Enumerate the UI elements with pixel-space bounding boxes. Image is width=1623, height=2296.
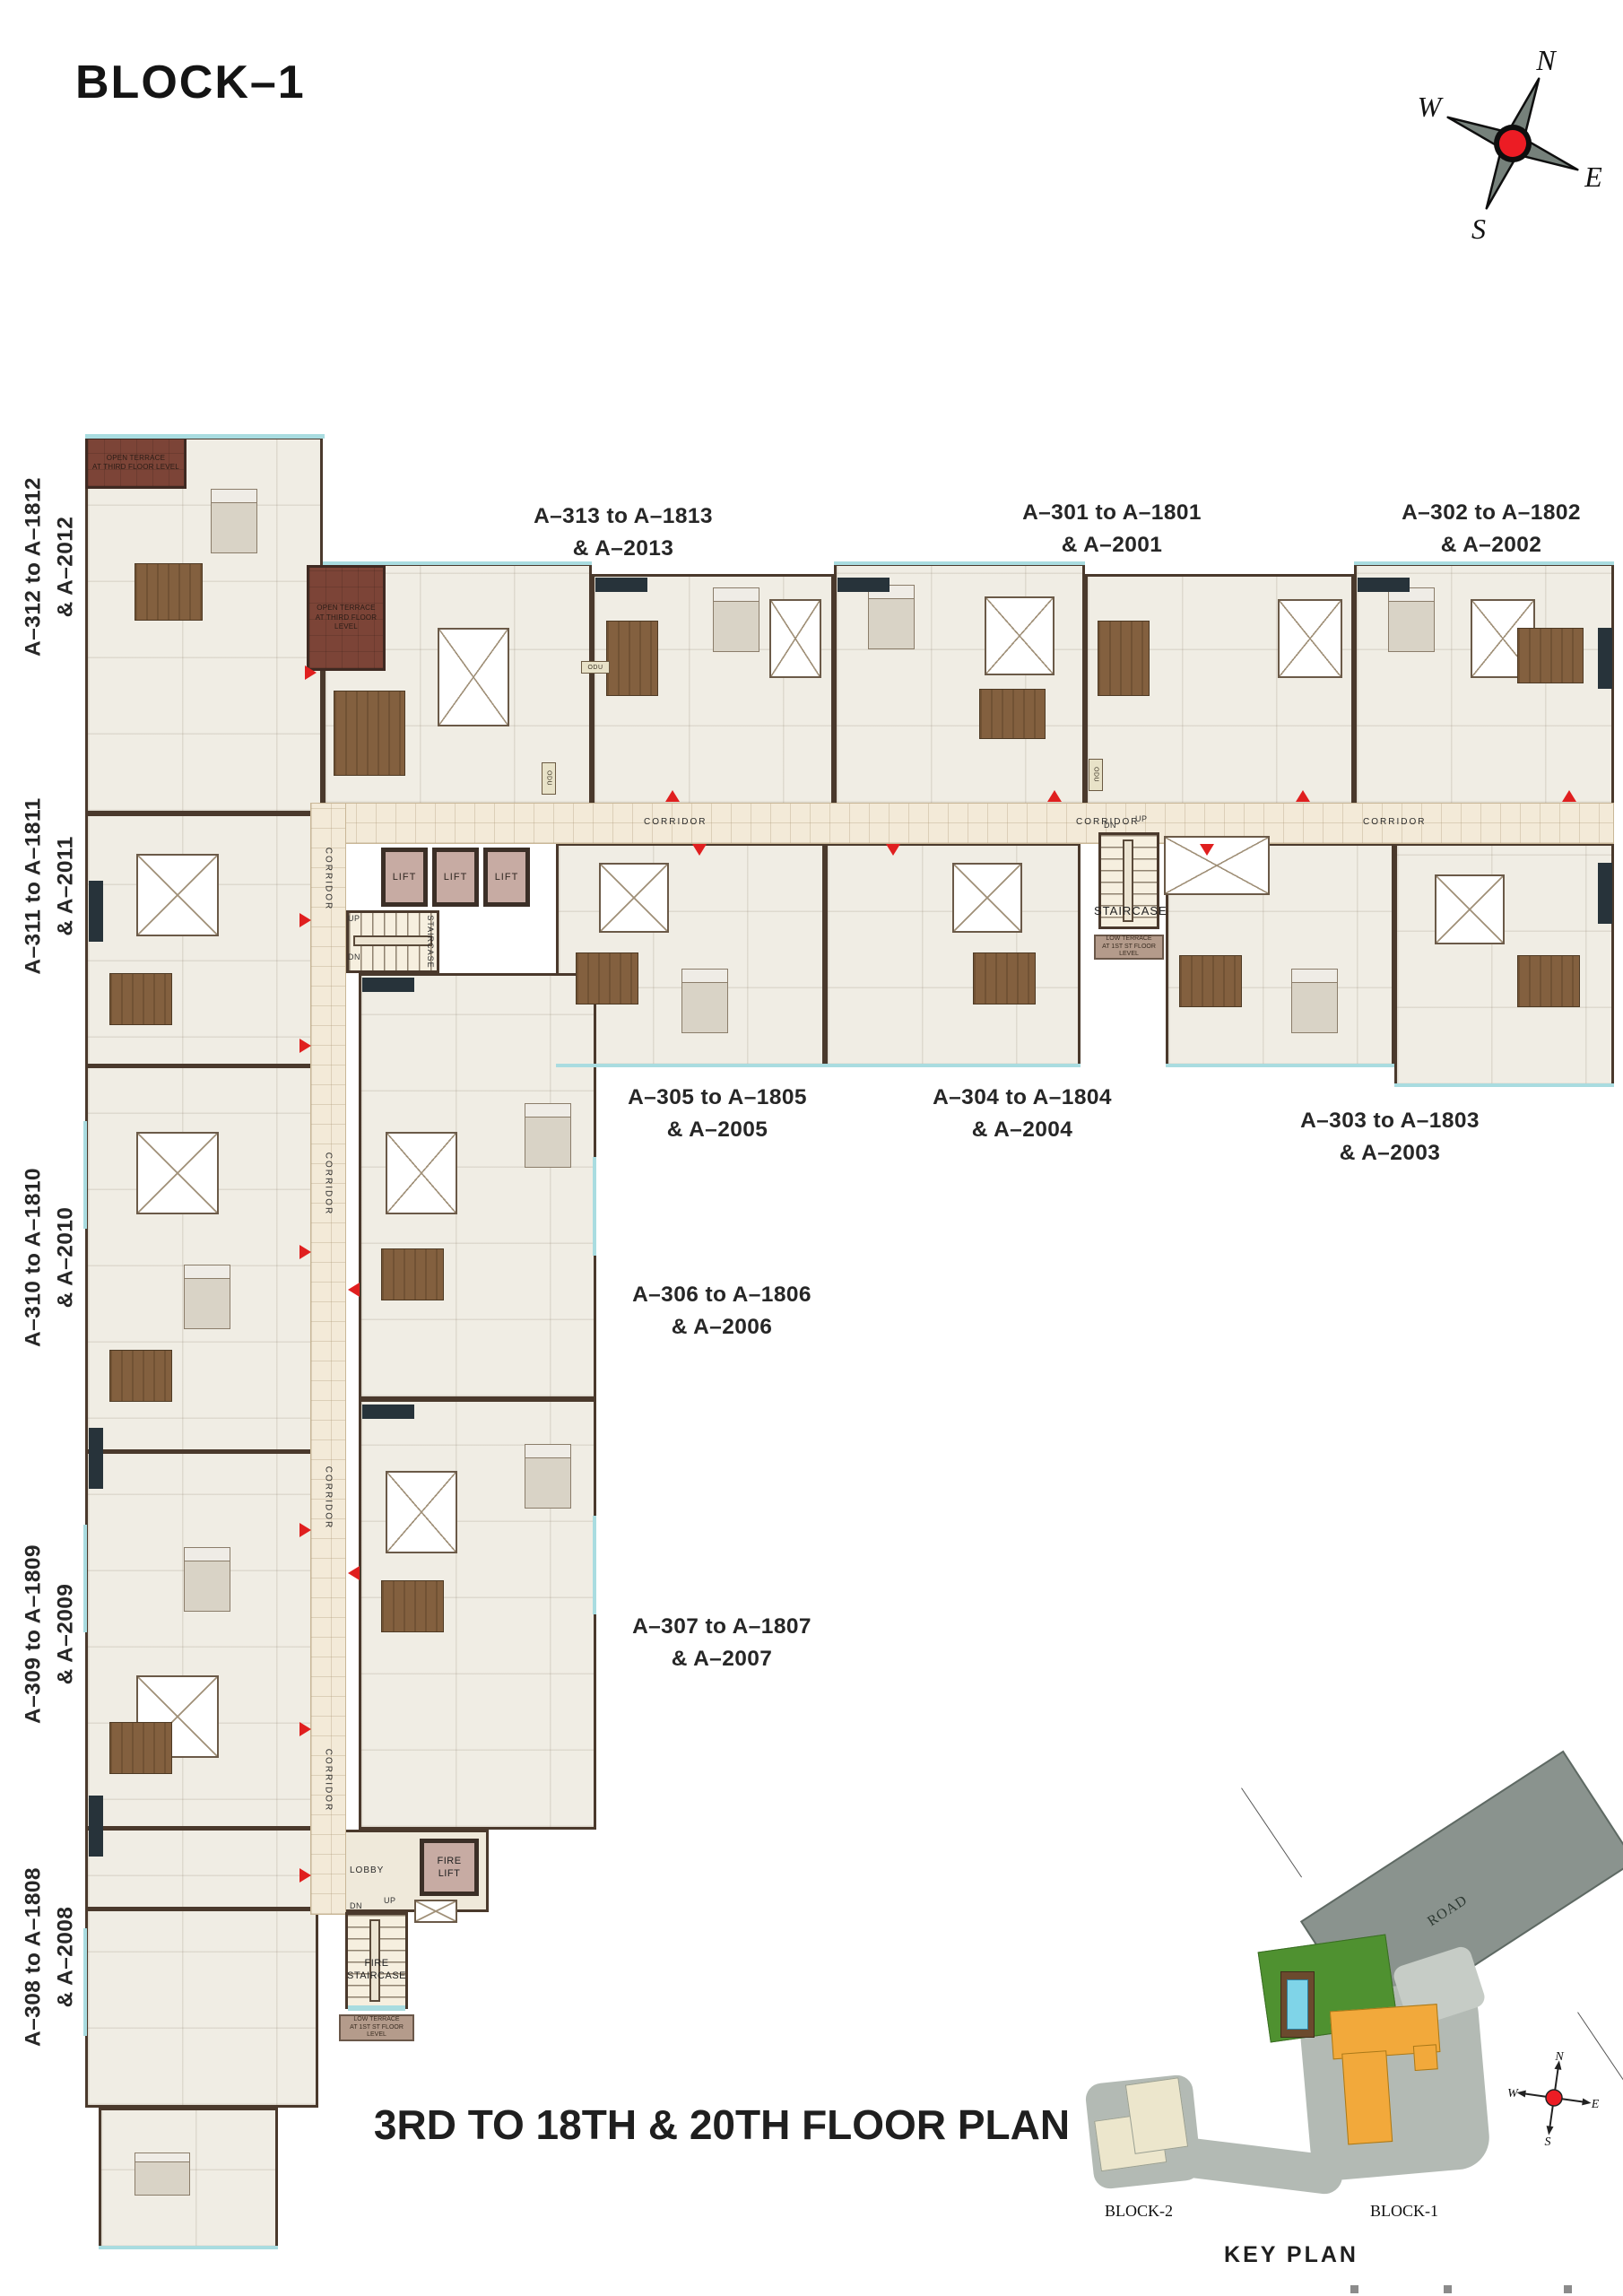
balcony xyxy=(1598,628,1612,689)
wood-floor xyxy=(1098,621,1150,696)
balcony xyxy=(89,881,103,942)
wood-floor xyxy=(1179,955,1242,1007)
wood-floor xyxy=(973,952,1036,1004)
keyplan-block1-wing xyxy=(1413,2044,1438,2071)
up-label: UP xyxy=(348,914,360,923)
keyplan-block1-label: BLOCK-1 xyxy=(1370,2202,1438,2221)
compass-rose-icon: N E S W xyxy=(1410,36,1616,247)
window-strip xyxy=(834,561,1085,565)
wood-floor xyxy=(109,1350,172,1402)
unit-label-line2: & A–2009 xyxy=(53,1584,77,1685)
lift-label: LIFT xyxy=(393,872,417,883)
unit-label-line2: & A–2001 xyxy=(1062,533,1163,557)
page-title: BLOCK–1 xyxy=(75,56,306,109)
unit-label-line1: A–301 to A–1801 xyxy=(1022,500,1202,525)
balcony xyxy=(1598,863,1612,924)
bed xyxy=(868,585,915,649)
window-strip xyxy=(1354,561,1614,565)
unit-label-a309: A–309 to A–1809 & A–2009 xyxy=(17,1522,81,1746)
unit-label-line1: A–304 to A–1804 xyxy=(933,1085,1112,1109)
wood-floor xyxy=(979,689,1046,739)
unit-label-a313: A–313 to A–1813 & A–2013 xyxy=(516,500,731,564)
low-terrace-line1: LOW TERRACE xyxy=(1106,935,1151,942)
mini-compass-icon: N E S W xyxy=(1505,2048,1603,2147)
wood-floor xyxy=(606,621,658,696)
window-strip xyxy=(593,1516,596,1614)
window-strip xyxy=(83,1121,87,1229)
open-terrace-line2: AT THIRD FLOOR LEVEL xyxy=(316,613,378,631)
bed xyxy=(1388,587,1435,652)
unit-label-line2: & A–2005 xyxy=(667,1118,768,1142)
up-label: UP xyxy=(384,1896,396,1905)
red-arrow xyxy=(1047,790,1062,802)
balcony xyxy=(89,1428,103,1489)
unit-label-line2: & A–2003 xyxy=(1340,1141,1441,1165)
unit-label-line1: A–311 to A–1811 xyxy=(21,797,45,974)
staircase-label: STAIRCASE xyxy=(1094,904,1164,918)
low-terrace: LOW TERRACE AT 1ST ST FLOOR LEVEL xyxy=(1094,935,1164,960)
wall-divider xyxy=(85,1064,318,1068)
sheet-edge-dot xyxy=(1350,2285,1358,2293)
red-arrow xyxy=(348,1283,360,1297)
wood-floor xyxy=(381,1580,444,1632)
mini-compass-e-label: E xyxy=(1591,2098,1600,2111)
unit-label-line2: & A–2011 xyxy=(53,836,77,935)
unit-label-a310: A–310 to A–1810 & A–2010 xyxy=(17,1145,81,1370)
low-terrace-line2: AT 1ST ST FLOOR LEVEL xyxy=(350,2024,404,2039)
lift-label: LIFT xyxy=(444,872,468,883)
unit-label-a306: A–306 to A–1806 & A–2006 xyxy=(614,1279,829,1343)
lift-box: LIFT xyxy=(483,848,530,907)
unit-label-a303: A–303 to A–1803 & A–2003 xyxy=(1282,1105,1497,1169)
void-room xyxy=(952,863,1022,933)
red-arrow xyxy=(305,665,317,680)
wood-floor xyxy=(381,1248,444,1300)
low-terrace: LOW TERRACE AT 1ST ST FLOOR LEVEL xyxy=(339,2014,414,2041)
unit-label-line1: A–308 to A–1808 xyxy=(21,1867,45,2047)
keyplan-block2-wing xyxy=(1125,2077,1188,2154)
fire-lift-line2: LIFT xyxy=(438,1868,461,1879)
unit-label-line2: & A–2013 xyxy=(573,536,674,561)
compass-n-label: N xyxy=(1535,44,1557,76)
window-strip xyxy=(556,1064,825,1067)
unit-label-a305: A–305 to A–1805 & A–2005 xyxy=(610,1082,825,1145)
red-arrow xyxy=(299,1722,311,1736)
wall-divider xyxy=(85,1449,318,1454)
wall-divider xyxy=(85,1907,318,1911)
unit-label-a308: A–308 to A–1808 & A–2008 xyxy=(17,1845,81,2069)
sheet-edge-dot xyxy=(1444,2285,1452,2293)
wood-floor xyxy=(109,1722,172,1774)
window-strip xyxy=(593,1157,596,1256)
fire-lift-line1: FIRE xyxy=(437,1856,461,1866)
void-room xyxy=(769,599,821,678)
keyplan-block2-label: BLOCK-2 xyxy=(1105,2202,1173,2221)
red-arrow xyxy=(299,1245,311,1259)
odu-tag: ODU xyxy=(1089,759,1103,791)
corridor-label: CORRIDOR xyxy=(324,1749,334,1812)
window-strip xyxy=(85,434,325,439)
balcony xyxy=(362,978,414,992)
void-room xyxy=(438,628,509,726)
unit-label-a301: A–301 to A–1801 & A–2001 xyxy=(1004,497,1219,561)
wood-floor xyxy=(1517,955,1580,1007)
window-strip xyxy=(83,1928,87,2036)
bed xyxy=(713,587,759,652)
lift-box: LIFT xyxy=(381,848,428,907)
compass-w-label: W xyxy=(1418,91,1445,123)
low-terrace-line1: LOW TERRACE xyxy=(353,2016,399,2022)
unit-label-a311: A–311 to A–1811 & A–2011 xyxy=(17,774,81,998)
unit-label-line1: A–313 to A–1813 xyxy=(534,504,713,528)
red-arrow xyxy=(1562,790,1576,802)
bed xyxy=(1291,969,1338,1033)
mini-compass-s-label: S xyxy=(1545,2135,1551,2147)
balcony xyxy=(1358,578,1410,592)
fire-lift-box: FIRE LIFT xyxy=(420,1839,479,1896)
window-strip xyxy=(348,2005,405,2011)
bed xyxy=(525,1444,571,1509)
unit-label-line1: A–310 to A–1810 xyxy=(21,1168,45,1347)
red-arrow xyxy=(348,1566,360,1580)
keyplan-block1-footprint xyxy=(1330,2004,1450,2145)
fire-staircase-line2: STAIRCASE xyxy=(347,1970,406,1981)
balcony xyxy=(838,578,890,592)
sheet-edge-dot xyxy=(1564,2285,1572,2293)
lobby-label: LOBBY xyxy=(350,1865,384,1875)
corridor-label: CORRIDOR xyxy=(324,1466,334,1529)
fire-lift-label: FIRE LIFT xyxy=(437,1855,461,1881)
open-terrace-line1: OPEN TERRACE xyxy=(107,454,165,462)
dn-label: DN xyxy=(350,1901,362,1910)
unit-label-line1: A–303 to A–1803 xyxy=(1300,1109,1480,1133)
unit-label-line1: A–312 to A–1812 xyxy=(21,477,45,657)
red-arrow xyxy=(886,844,900,856)
bed xyxy=(184,1265,230,1329)
void-room xyxy=(136,1132,219,1214)
red-arrow xyxy=(692,844,707,856)
red-arrow xyxy=(299,1523,311,1537)
unit-label-line2: & A–2010 xyxy=(53,1207,77,1309)
dn-label: DN xyxy=(1104,821,1116,830)
balcony xyxy=(595,578,647,592)
red-arrow xyxy=(1296,790,1310,802)
void-room xyxy=(136,854,219,936)
wood-floor xyxy=(576,952,638,1004)
compass-e-label: E xyxy=(1584,161,1602,193)
void-room xyxy=(1164,836,1270,895)
fire-staircase-label: FIRE STAIRCASE xyxy=(339,1957,414,1983)
window-strip xyxy=(825,1064,1081,1067)
unit-label-line1: A–307 to A–1807 xyxy=(632,1614,811,1639)
keyplan-pool xyxy=(1287,1979,1308,2030)
unit-label-line1: A–309 to A–1809 xyxy=(21,1544,45,1724)
open-terrace: OPEN TERRACE AT THIRD FLOOR LEVEL xyxy=(85,437,187,489)
bed xyxy=(525,1103,571,1168)
wood-floor xyxy=(109,973,172,1025)
wood-floor xyxy=(1517,628,1584,683)
staircase-rail xyxy=(353,935,432,946)
floor-plan-sheet: BLOCK–1 N E S W CORRIDOR CORRID xyxy=(0,0,1623,2296)
keyplan-block2-footprint xyxy=(1089,2076,1201,2183)
unit-label-line1: A–306 to A–1806 xyxy=(632,1283,811,1307)
unit-label-a302: A–302 to A–1802 & A–2002 xyxy=(1379,497,1603,561)
unit-label-line1: A–302 to A–1802 xyxy=(1402,500,1581,525)
keyplan-title: KEY PLAN xyxy=(1202,2242,1381,2268)
void-room xyxy=(386,1471,457,1553)
low-terrace-line2: AT 1ST ST FLOOR LEVEL xyxy=(1102,944,1156,958)
odu-tag: ODU xyxy=(581,661,610,674)
unit-label-a307: A–307 to A–1807 & A–2007 xyxy=(614,1611,829,1674)
staircase-label: STAIRCASE xyxy=(426,915,435,968)
open-terrace-line1: OPEN TERRACE xyxy=(317,604,375,612)
corridor-label: CORRIDOR xyxy=(1363,817,1426,827)
lift-label: LIFT xyxy=(495,872,519,883)
wood-floor xyxy=(135,563,203,621)
bed xyxy=(135,2152,190,2196)
void-room xyxy=(386,1132,457,1214)
corridor-label: CORRIDOR xyxy=(324,848,334,910)
balcony xyxy=(89,1796,103,1857)
window-strip xyxy=(1394,1083,1614,1087)
wall-divider xyxy=(85,1826,318,1831)
wood-floor xyxy=(334,691,405,776)
window-strip xyxy=(99,2246,278,2249)
window-strip xyxy=(83,1525,87,1632)
mini-compass-n-label: N xyxy=(1554,2050,1564,2064)
unit-label-a304: A–304 to A–1804 & A–2004 xyxy=(915,1082,1130,1145)
fire-staircase-line1: FIRE xyxy=(364,1958,388,1969)
dn-label: DN xyxy=(348,952,360,961)
unit-label-line2: & A–2007 xyxy=(672,1647,773,1671)
odu-tag: ODU xyxy=(542,762,556,795)
red-arrow xyxy=(299,1868,311,1883)
bed xyxy=(211,489,257,553)
floor-plan-title: 3RD TO 18TH & 20TH FLOOR PLAN xyxy=(363,2100,1081,2149)
bed xyxy=(681,969,728,1033)
window-strip xyxy=(1166,1064,1394,1067)
unit-label-line2: & A–2006 xyxy=(672,1315,773,1339)
room-block xyxy=(85,437,323,813)
compass-s-label: S xyxy=(1471,213,1486,245)
up-label: UP xyxy=(1135,814,1148,823)
unit-label-line1: A–305 to A–1805 xyxy=(628,1085,807,1109)
unit-label-a312: A–312 to A–1812 & A–2012 xyxy=(17,455,81,679)
void-room xyxy=(985,596,1055,675)
void-room xyxy=(599,863,669,933)
open-terrace: OPEN TERRACE AT THIRD FLOOR LEVEL xyxy=(307,565,386,671)
void-room xyxy=(1435,874,1505,944)
lift-box: LIFT xyxy=(432,848,479,907)
red-arrow xyxy=(299,1039,311,1053)
unit-label-line2: & A–2012 xyxy=(53,517,77,618)
mini-compass-w-label: W xyxy=(1507,2087,1519,2100)
balcony xyxy=(362,1405,414,1419)
unit-label-line2: & A–2004 xyxy=(972,1118,1073,1142)
void-room xyxy=(1278,599,1342,678)
keyplan-block1-wing xyxy=(1341,2050,1393,2144)
corridor-label: CORRIDOR xyxy=(324,1152,334,1215)
open-terrace-line2: AT THIRD FLOOR LEVEL xyxy=(92,463,179,471)
unit-label-line2: & A–2002 xyxy=(1441,533,1542,557)
bed xyxy=(184,1547,230,1612)
site-boundary-line xyxy=(1241,1773,1324,1878)
corridor-label: CORRIDOR xyxy=(644,817,707,827)
void-room xyxy=(414,1900,457,1923)
red-arrow xyxy=(1200,844,1214,856)
unit-label-line2: & A–2008 xyxy=(53,1907,77,2008)
red-arrow xyxy=(665,790,680,802)
red-arrow xyxy=(299,913,311,927)
